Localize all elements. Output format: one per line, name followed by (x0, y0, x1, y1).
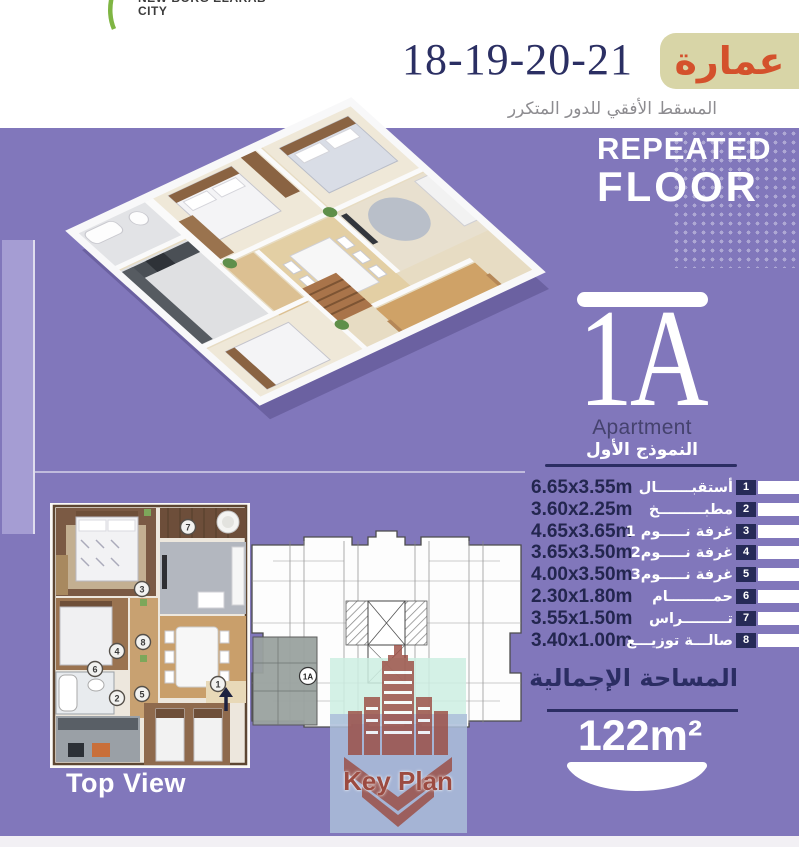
room-name: تـــــــــراس (649, 610, 733, 628)
room-row: 3.65x3.50m غرفة نـــــوم2 4 (510, 542, 799, 564)
banner-line1: REPEATED (597, 133, 772, 164)
room-dims: 3.40x1.00m (531, 631, 632, 651)
apartment-code: 1A (572, 300, 712, 418)
room-name: غرفة نـــــوم3 (631, 566, 733, 584)
apartment-divider (545, 464, 737, 467)
room-row-bar (758, 481, 799, 494)
room-dims: 4.00x3.50m (531, 565, 632, 585)
room-number-badge: 8 (736, 633, 756, 648)
room-row-bar (758, 546, 799, 559)
room-row: 2.30x1.80m حمـــــــــام 6 (510, 586, 799, 608)
room-dims: 3.60x2.25m (531, 500, 632, 520)
floorplan-poster: NEW BORG ELARAB CITY 18-19-20-21 عمارة ا… (0, 0, 799, 847)
room-dims: 2.30x1.80m (531, 587, 632, 607)
room-name: أستقبـــــــال (639, 479, 733, 497)
left-accent-strip (2, 240, 33, 534)
room-number-badge: 6 (736, 589, 756, 604)
isometric-floorplan-render (30, 10, 575, 505)
room-dims: 6.65x3.55m (531, 478, 632, 498)
repeated-floor-banner: REPEATED FLOOR (597, 133, 772, 208)
banner-line2: FLOOR (597, 166, 772, 208)
tower-logo-icon (338, 645, 458, 835)
curve-shape (566, 762, 708, 792)
marker-5: 5 (139, 690, 144, 700)
marker-2: 2 (114, 694, 119, 704)
room-name: مطبـــــــــخ (649, 501, 733, 519)
marker-7: 7 (185, 523, 190, 533)
bottom-strip (0, 836, 799, 847)
key-plan-label: Key Plan (334, 766, 462, 797)
room-number-badge: 4 (736, 545, 756, 560)
total-area-label: المساحة الإجمالية (529, 664, 738, 692)
room-name: حمـــــــــام (652, 588, 733, 606)
room-number-badge: 3 (736, 524, 756, 539)
apartment-label: Apartment (542, 416, 742, 440)
room-row-bar (758, 503, 799, 516)
total-area-value: 122m² (540, 712, 740, 760)
room-number-badge: 5 (736, 567, 756, 582)
room-number-badge: 2 (736, 502, 756, 517)
room-row-bar (758, 612, 799, 625)
marker-4: 4 (114, 647, 119, 657)
room-row-bar (758, 634, 799, 647)
room-dims: 4.65x3.65m (531, 522, 632, 542)
room-dims: 3.65x3.50m (531, 543, 632, 563)
apartment-model-arabic: النموذج الأول (542, 440, 742, 460)
room-list: 6.65x3.55m أستقبـــــــال 1 3.60x2.25m م… (510, 477, 799, 651)
building-label-badge: عمارة (660, 33, 799, 89)
room-number-badge: 7 (736, 611, 756, 626)
room-name: غرفة نـــــوم2 (631, 544, 733, 562)
room-row: 4.65x3.65m غرفة نـــــوم 1 3 (510, 521, 799, 543)
room-row-bar (758, 590, 799, 603)
room-number-badge: 1 (736, 480, 756, 495)
room-row: 3.60x2.25m مطبـــــــــخ 2 (510, 499, 799, 521)
room-name: صالـــة توزيـــع (626, 632, 733, 650)
top-view-label: Top View (66, 768, 186, 799)
room-row: 3.55x1.50m تـــــــــراس 7 (510, 608, 799, 630)
building-label-text: عمارة (674, 35, 784, 87)
marker-6: 6 (92, 665, 97, 675)
room-row: 4.00x3.50m غرفة نـــــوم3 5 (510, 564, 799, 586)
key-plan-unit-label: 1A (303, 673, 313, 682)
room-row-bar (758, 568, 799, 581)
room-name: غرفة نـــــوم 1 (626, 523, 733, 541)
room-row: 6.65x3.55m أستقبـــــــال 1 (510, 477, 799, 499)
room-dims: 3.55x1.50m (531, 609, 632, 629)
top-view-plan: 7 3 8 4 6 2 5 1 (48, 495, 253, 773)
marker-1: 1 (215, 680, 220, 690)
room-row: 3.40x1.00m صالـــة توزيـــع 8 (510, 630, 799, 652)
marker-8: 8 (140, 638, 145, 648)
marker-3: 3 (139, 585, 144, 595)
room-row-bar (758, 525, 799, 538)
